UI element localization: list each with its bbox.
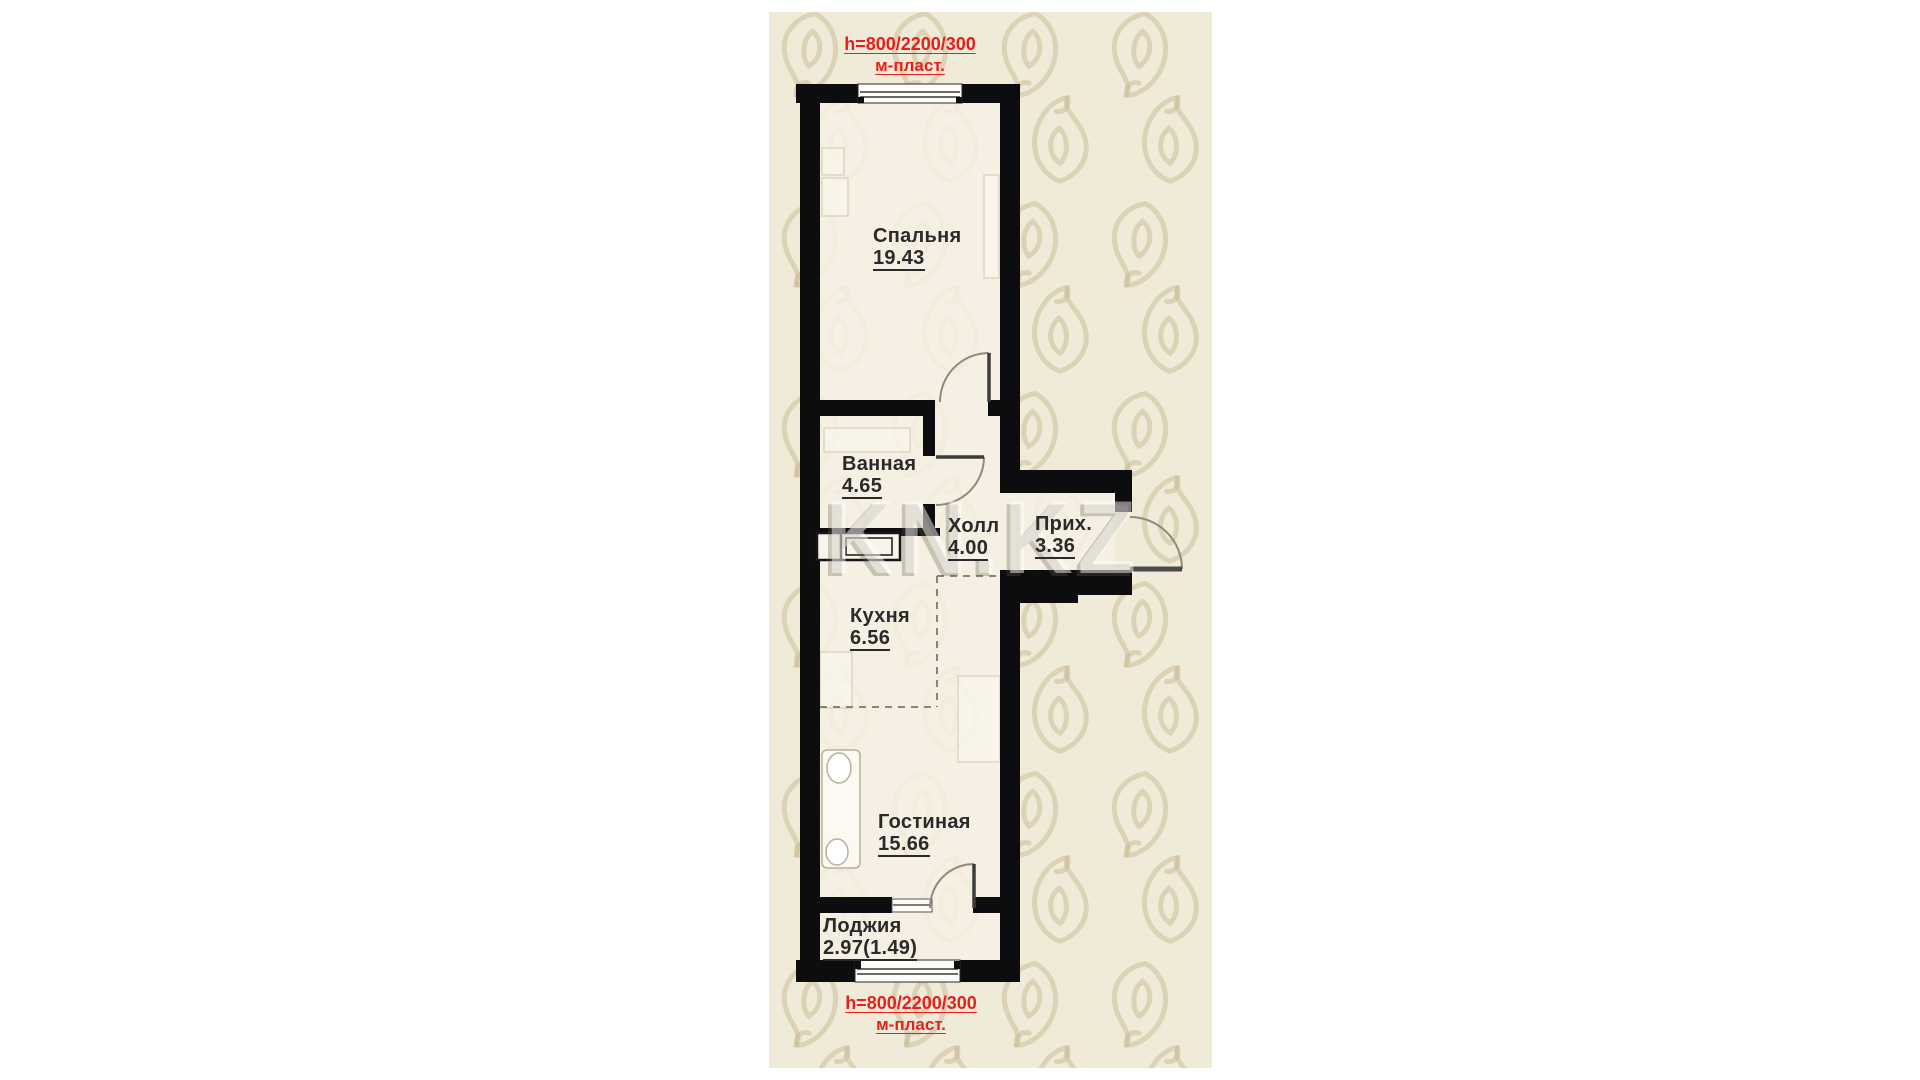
page: h=800/2200/300 м-пласт. h=800/2200/300 м…	[0, 0, 1920, 1080]
room-area: 19.43	[873, 247, 925, 271]
window-bottom	[855, 960, 960, 982]
window-note-top: h=800/2200/300 м-пласт.	[790, 34, 1030, 75]
room-area: 6.56	[850, 627, 890, 651]
room-label-bedroom: Спальня 19.43	[873, 225, 962, 271]
room-name: Лоджия	[823, 915, 917, 937]
window-note-bottom: h=800/2200/300 м-пласт.	[791, 993, 1031, 1034]
room-label-bathroom: Ванная 4.65	[842, 453, 916, 499]
room-area: 4.00	[948, 537, 988, 561]
floorplan-panel: h=800/2200/300 м-пласт. h=800/2200/300 м…	[769, 12, 1212, 1068]
room-label-loggia: Лоджия 2.97(1.49)	[823, 915, 917, 961]
room-name: Гостиная	[878, 811, 971, 833]
room-name: Прих.	[1035, 513, 1092, 535]
room-label-entry: Прих. 3.36	[1035, 513, 1092, 559]
window-note-top-line2: м-пласт.	[790, 56, 1030, 75]
room-name: Ванная	[842, 453, 916, 475]
room-name: Спальня	[873, 225, 962, 247]
sofa	[822, 750, 860, 868]
room-label-kitchen: Кухня 6.56	[850, 605, 910, 651]
window-top	[858, 84, 962, 103]
room-area: 2.97(1.49)	[823, 937, 917, 961]
room-label-living: Гостиная 15.66	[878, 811, 971, 857]
room-label-hall: Холл 4.00	[948, 515, 999, 561]
room-area: 3.36	[1035, 535, 1075, 559]
window-note-top-line1: h=800/2200/300	[790, 34, 1030, 54]
room-area: 15.66	[878, 833, 930, 857]
room-name: Кухня	[850, 605, 910, 627]
window-note-bottom-line1: h=800/2200/300	[791, 993, 1031, 1013]
window-note-bottom-line2: м-пласт.	[791, 1015, 1031, 1034]
room-name: Холл	[948, 515, 999, 537]
loggia-window-block	[892, 899, 932, 912]
room-area: 4.65	[842, 475, 882, 499]
